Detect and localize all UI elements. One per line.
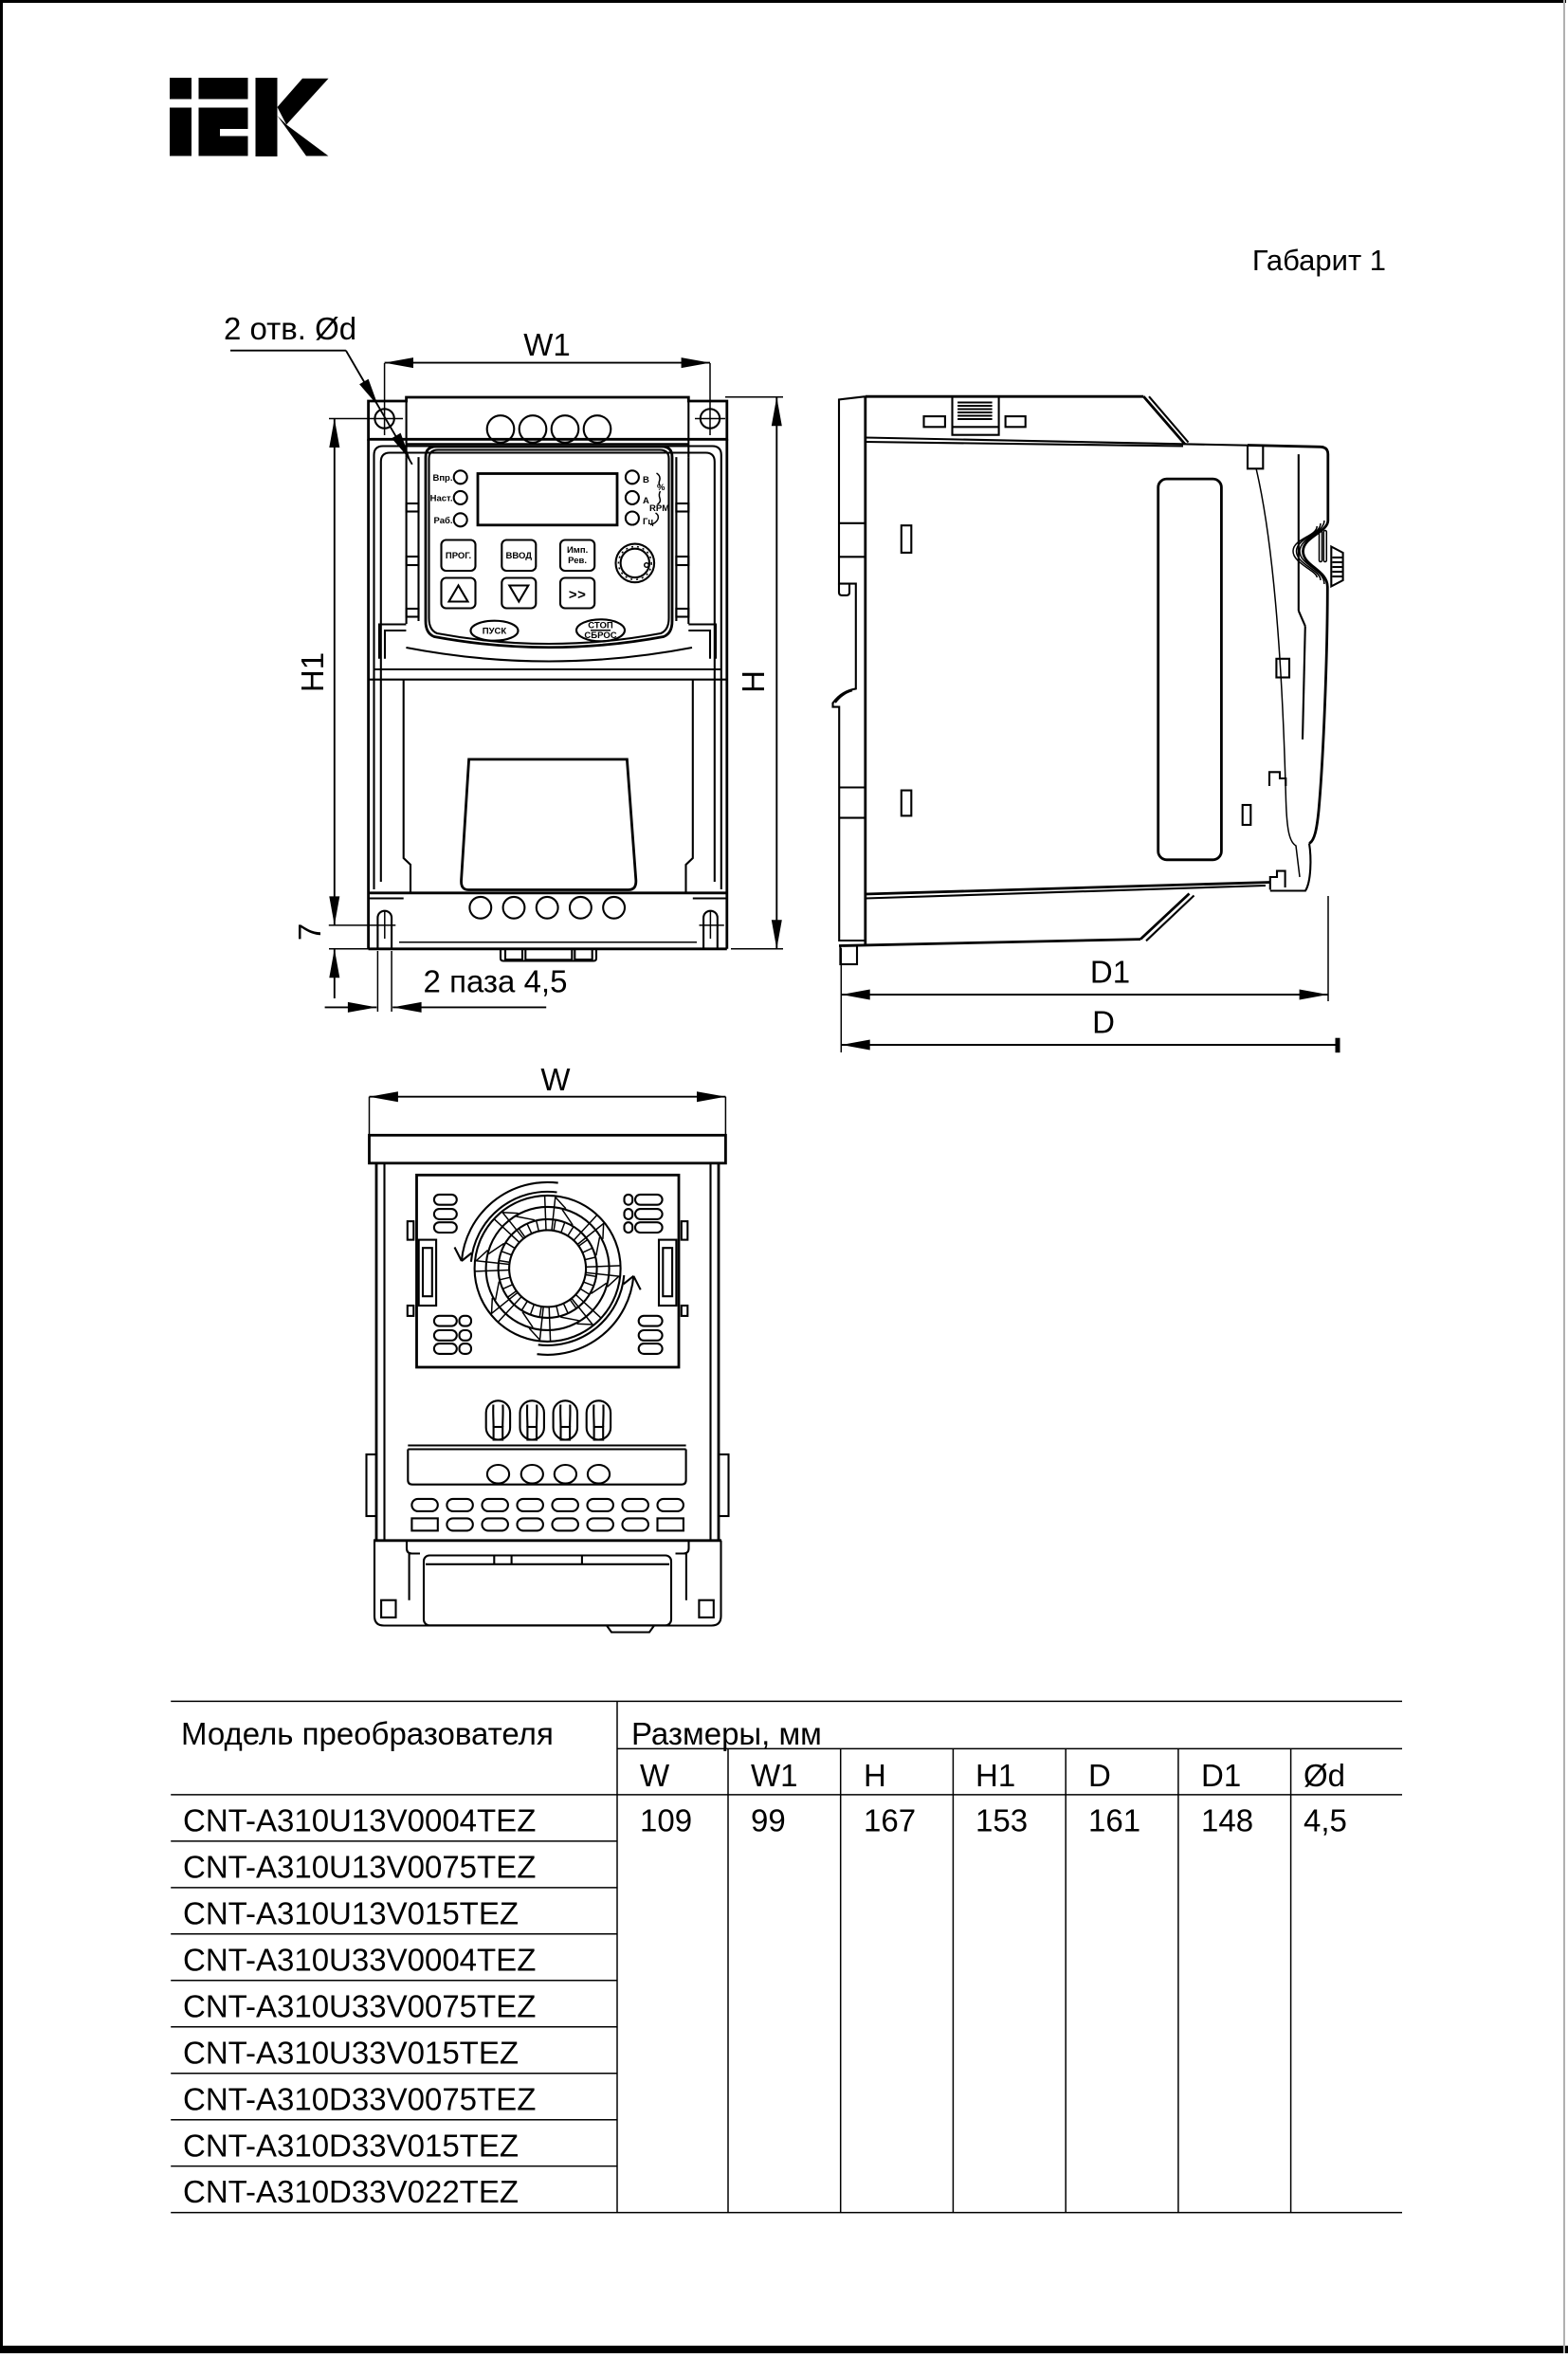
- svg-text:4,5: 4,5: [1304, 1803, 1347, 1838]
- svg-text:D1: D1: [1201, 1758, 1241, 1793]
- svg-text:W1: W1: [523, 327, 571, 362]
- svg-text:Имп.: Имп.: [567, 545, 588, 556]
- svg-text:Размеры, мм: Размеры, мм: [631, 1716, 822, 1751]
- svg-text:H: H: [864, 1758, 886, 1793]
- svg-text:Гц: Гц: [643, 517, 653, 527]
- svg-text:ВВОД: ВВОД: [506, 551, 533, 561]
- svg-text:D1: D1: [1090, 955, 1130, 990]
- svg-text:H1: H1: [295, 652, 330, 692]
- svg-text:153: 153: [975, 1803, 1028, 1838]
- svg-text:99: 99: [751, 1803, 786, 1838]
- svg-text:W1: W1: [751, 1758, 798, 1793]
- svg-text:CNT-A310U33V0075TEZ: CNT-A310U33V0075TEZ: [183, 1988, 536, 2023]
- svg-text:CNT-A310D33V022TEZ: CNT-A310D33V022TEZ: [183, 2174, 519, 2209]
- svg-text:B: B: [643, 475, 649, 485]
- svg-text:СБРОС: СБРОС: [584, 631, 616, 641]
- svg-text:>>: >>: [569, 587, 587, 603]
- svg-text:RPM: RPM: [649, 503, 669, 514]
- svg-text:CNT-A310U33V015TEZ: CNT-A310U33V015TEZ: [183, 2035, 519, 2070]
- svg-text:161: 161: [1088, 1803, 1140, 1838]
- svg-text:CNT-A310U33V0004TEZ: CNT-A310U33V0004TEZ: [183, 1942, 536, 1977]
- svg-text:H: H: [736, 670, 771, 693]
- svg-text:Наст.: Наст.: [430, 494, 453, 504]
- svg-text:W: W: [640, 1758, 670, 1793]
- svg-text:D: D: [1092, 1005, 1115, 1040]
- svg-text:CNT-A310U13V0004TEZ: CNT-A310U13V0004TEZ: [183, 1803, 536, 1838]
- svg-text:A: A: [643, 496, 649, 506]
- svg-text:Впр.: Впр.: [432, 473, 452, 484]
- svg-text:W: W: [540, 1062, 571, 1097]
- svg-text:CNT-A310U13V015TEZ: CNT-A310U13V015TEZ: [183, 1896, 519, 1931]
- svg-text:Ød: Ød: [1304, 1758, 1345, 1793]
- svg-text:ПРОГ.: ПРОГ.: [446, 551, 471, 561]
- svg-text:CNT-A310D33V015TEZ: CNT-A310D33V015TEZ: [183, 2128, 519, 2163]
- svg-text:%: %: [657, 483, 665, 493]
- svg-text:109: 109: [640, 1803, 692, 1838]
- svg-text:7: 7: [292, 923, 327, 941]
- svg-text:D: D: [1088, 1758, 1111, 1793]
- svg-text:Модель преобразователя: Модель преобразователя: [181, 1716, 554, 1751]
- svg-text:Рев.: Рев.: [568, 556, 587, 566]
- svg-text:167: 167: [864, 1803, 916, 1838]
- svg-text:CNT-A310U13V0075TEZ: CNT-A310U13V0075TEZ: [183, 1850, 536, 1885]
- svg-text:ПУСК: ПУСК: [483, 627, 507, 637]
- svg-text:2 отв. Ød: 2 отв. Ød: [224, 311, 356, 346]
- svg-text:Габарит 1: Габарит 1: [1252, 244, 1386, 277]
- svg-text:2 паза 4,5: 2 паза 4,5: [424, 964, 568, 999]
- svg-text:H1: H1: [975, 1758, 1015, 1793]
- svg-text:148: 148: [1201, 1803, 1253, 1838]
- svg-text:Раб.: Раб.: [433, 516, 452, 526]
- svg-text:CNT-A310D33V0075TEZ: CNT-A310D33V0075TEZ: [183, 2081, 536, 2116]
